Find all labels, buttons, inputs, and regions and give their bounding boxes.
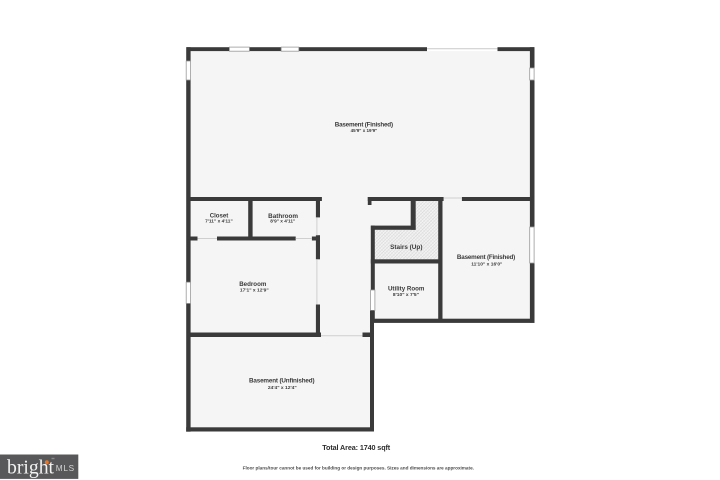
svg-text:MLS: MLS [56, 464, 75, 473]
svg-text:11'10" x 16'0": 11'10" x 16'0" [471, 261, 502, 267]
svg-text:Floor plans/tour cannot be use: Floor plans/tour cannot be used for buil… [243, 466, 474, 471]
svg-text:8'9" x 4'11": 8'9" x 4'11" [270, 219, 295, 225]
svg-text:7'11" x 4'11": 7'11" x 4'11" [205, 219, 233, 225]
svg-text:Utility Room: Utility Room [388, 285, 425, 292]
svg-text:45'9" x 19'9": 45'9" x 19'9" [351, 128, 378, 133]
svg-text:24'4" x 12'4": 24'4" x 12'4" [268, 385, 297, 391]
svg-text:Bedroom: Bedroom [239, 281, 267, 288]
svg-text:bright: bright [7, 457, 55, 479]
svg-text:8'10" x 7'5": 8'10" x 7'5" [393, 292, 419, 298]
svg-text:Stairs (Up): Stairs (Up) [390, 244, 422, 251]
svg-text:Basement (Finished): Basement (Finished) [457, 254, 515, 261]
svg-text:17'1" x 12'9": 17'1" x 12'9" [240, 288, 269, 294]
svg-text:Total Area: 1740 sqft: Total Area: 1740 sqft [322, 443, 391, 452]
svg-text:Basement (Unfinished): Basement (Unfinished) [249, 377, 314, 384]
